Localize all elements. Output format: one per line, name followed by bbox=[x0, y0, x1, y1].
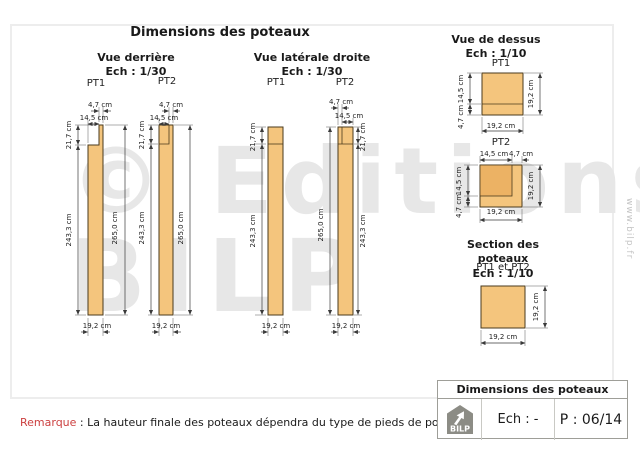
dim-total-height: 265,0 cm bbox=[177, 211, 185, 244]
top-view-pt2: 14,5 cm 4,7 cm 14,5 cm 4,7 cm 19,2 cm 19… bbox=[455, 150, 543, 223]
dim-tenon-height: 21,7 cm bbox=[359, 123, 367, 152]
side-pt2-label: PT2 bbox=[325, 77, 365, 88]
notch-shape bbox=[480, 165, 512, 196]
dim-tenon-height: 21,7 cm bbox=[65, 121, 73, 150]
side-view-title: Vue latérale droite bbox=[242, 51, 382, 65]
dim-shoulder-width: 14,5 cm bbox=[150, 114, 179, 122]
dim-post-width: 19,2 cm bbox=[487, 122, 516, 130]
dim-shoulder-width: 14,5 cm bbox=[80, 114, 109, 122]
post-shape bbox=[159, 125, 173, 315]
section-view: 19,2 cm 19,2 cm bbox=[481, 286, 548, 346]
section-subtitle: PT1 et PT2 bbox=[453, 262, 553, 273]
post-shape bbox=[268, 127, 283, 315]
dim-shoulder-width: 14,5 cm bbox=[480, 150, 509, 158]
dim-shoulder-width: 14,5 cm bbox=[457, 75, 465, 104]
post-shape bbox=[338, 127, 353, 315]
dim-shoulder-width: 14,5 cm bbox=[455, 167, 463, 196]
rear-view-pt1: 4,7 cm 14,5 cm 21,7 cm 243,3 cm 265,0 cm… bbox=[65, 101, 128, 336]
dim-tenon-width: 4,7 cm bbox=[159, 101, 183, 109]
rear-view-pt2: 4,7 cm 14,5 cm 21,7 cm 243,3 cm 265,0 cm… bbox=[138, 101, 193, 336]
top-view-title: Vue de dessus bbox=[436, 33, 556, 47]
side-view-pt2: 4,7 cm 14,5 cm 265,0 cm 21,7 cm 243,3 cm… bbox=[317, 98, 367, 336]
dim-body-height: 243,3 cm bbox=[65, 213, 73, 246]
dim-post-width: 19,2 cm bbox=[487, 208, 516, 216]
section-view-header: Section des poteaux Ech : 1/10 bbox=[443, 238, 563, 281]
dim-tenon-width: 4,7 cm bbox=[455, 194, 463, 218]
rear-pt1-label: PT1 bbox=[76, 78, 116, 89]
post-section-shape bbox=[481, 286, 525, 328]
dim-post-width: 19,2 cm bbox=[527, 172, 535, 201]
dim-post-width: 19,2 cm bbox=[262, 322, 291, 330]
dim-tenon-height: 21,7 cm bbox=[138, 121, 146, 150]
bilp-logo-icon: BILP bbox=[447, 405, 473, 434]
title-block-scale: Ech : - bbox=[481, 399, 554, 440]
side-pt1-label: PT1 bbox=[256, 77, 296, 88]
post-shape bbox=[88, 125, 103, 315]
plan-page: © Editions BILP bbox=[0, 0, 640, 452]
top-pt2-label: PT2 bbox=[481, 137, 521, 148]
side-view-pt1: 21,7 cm 243,3 cm 19,2 cm bbox=[249, 123, 290, 336]
dim-tenon-height: 21,7 cm bbox=[249, 123, 257, 152]
dim-body-height: 243,3 cm bbox=[249, 214, 257, 247]
top-pt1-label: PT1 bbox=[481, 58, 521, 69]
title-block-page-number: P : 06/14 bbox=[554, 399, 627, 440]
side-view-header: Vue latérale droite Ech : 1/30 bbox=[242, 51, 382, 80]
dim-post-width: 19,2 cm bbox=[532, 293, 540, 322]
dim-body-height: 243,3 cm bbox=[138, 211, 146, 244]
dim-tenon-width: 4,7 cm bbox=[329, 98, 353, 106]
remark-label: Remarque bbox=[20, 416, 76, 429]
page-title: Dimensions des poteaux bbox=[20, 25, 420, 40]
rear-pt2-label: PT2 bbox=[147, 76, 187, 87]
rear-view-title: Vue derrière bbox=[66, 51, 206, 65]
dim-tenon-width: 4,7 cm bbox=[509, 150, 533, 158]
dim-post-width: 19,2 cm bbox=[152, 322, 181, 330]
logo-text: BILP bbox=[449, 425, 469, 434]
dim-total-height: 265,0 cm bbox=[111, 211, 119, 244]
title-block: Dimensions des poteaux BILP Ech : - P : … bbox=[437, 380, 628, 439]
website-url: www.bilp.fr bbox=[624, 198, 634, 288]
top-view-pt1: 14,5 cm 4,7 cm 19,2 cm 19,2 cm bbox=[457, 73, 543, 134]
dim-body-height: 243,3 cm bbox=[359, 214, 367, 247]
dim-tenon-width: 4,7 cm bbox=[457, 105, 465, 129]
dim-post-width: 19,2 cm bbox=[83, 322, 112, 330]
bilp-logo: BILP bbox=[438, 399, 481, 440]
dim-total-height: 265,0 cm bbox=[317, 208, 325, 241]
title-block-title: Dimensions des poteaux bbox=[438, 381, 627, 399]
dim-tenon-width: 4,7 cm bbox=[88, 101, 112, 109]
dim-post-width: 19,2 cm bbox=[332, 322, 361, 330]
post-section-shape bbox=[482, 73, 523, 115]
dim-shoulder-width: 14,5 cm bbox=[335, 112, 364, 120]
dim-post-width: 19,2 cm bbox=[527, 80, 535, 109]
dim-post-width: 19,2 cm bbox=[489, 333, 518, 341]
